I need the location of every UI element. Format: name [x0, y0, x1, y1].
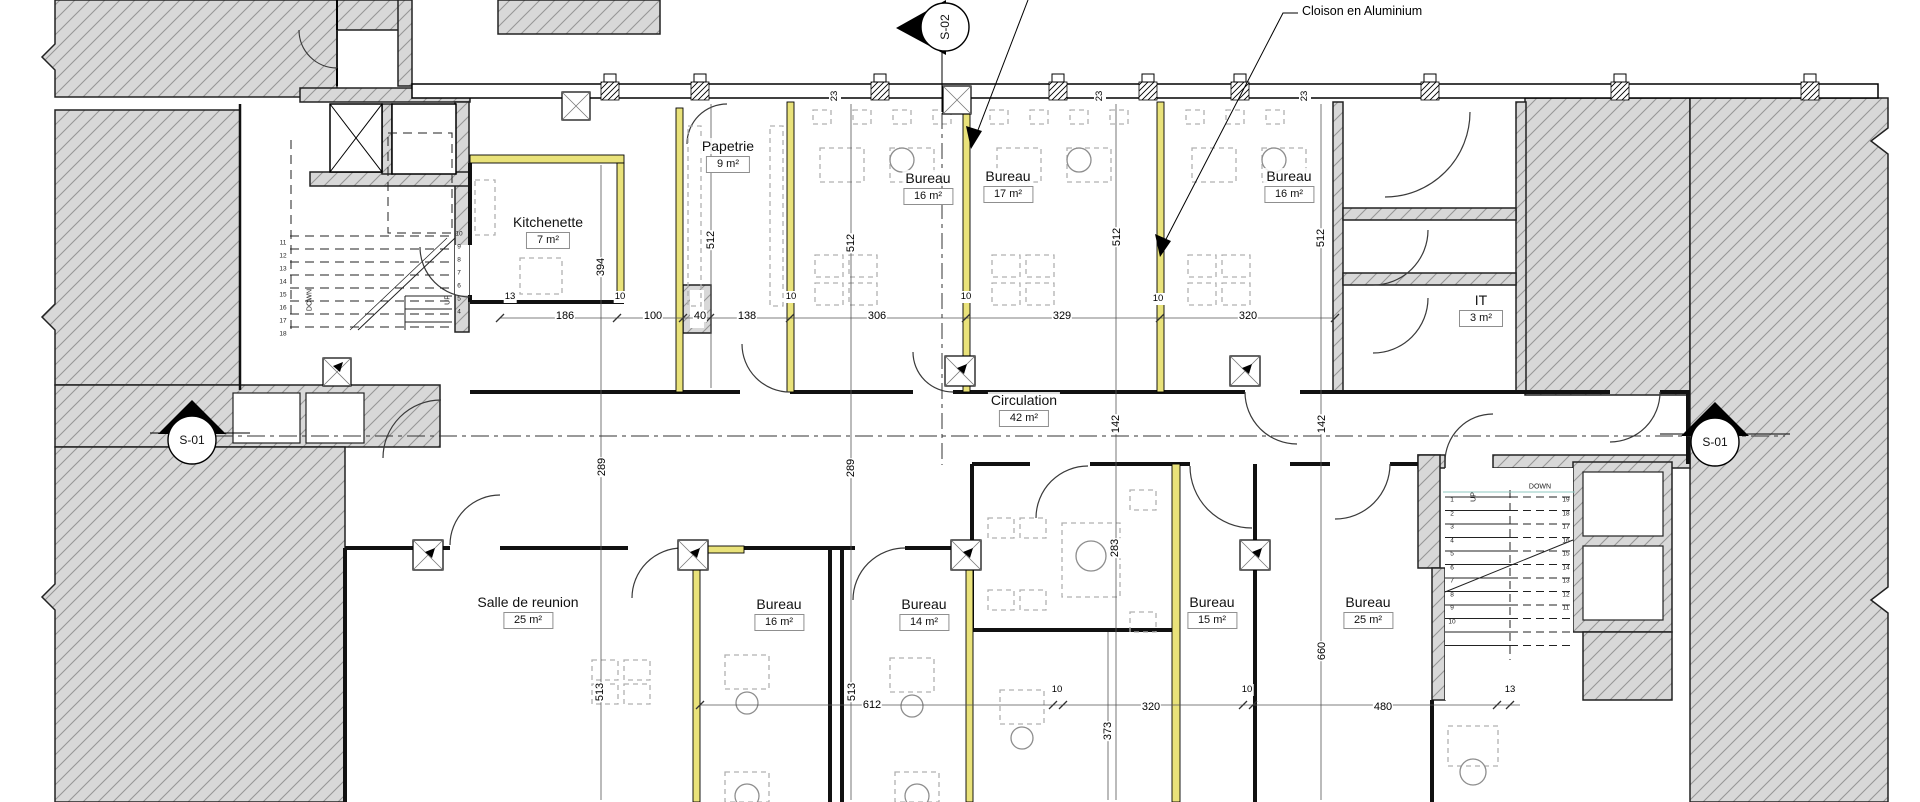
dim-10-d: 10	[1152, 293, 1165, 305]
stair-tread-number: 15	[1562, 551, 1569, 558]
stair-tread-number: 7	[1450, 578, 1454, 585]
stair-tread-number: 9	[1450, 605, 1454, 612]
stair-tread-number: 15	[279, 292, 286, 299]
dim-283: 283	[1109, 538, 1121, 558]
dim-23-a: 23	[829, 90, 841, 103]
stair-tread-number: 10	[1448, 618, 1455, 625]
stair-tread-number: 16	[279, 305, 286, 312]
room-label-bureau-bottom-1: Bureau16 m²	[753, 596, 804, 631]
stair-tread-number: 5	[1450, 551, 1454, 558]
room-label-salle-de-reunion: Salle de reunion25 m²	[474, 594, 581, 629]
dim-10-e: 10	[1051, 684, 1064, 696]
stair-tread-number: 18	[279, 331, 286, 338]
stair-tread-number: 1	[1450, 497, 1454, 504]
dim-289-b: 289	[845, 458, 857, 478]
annotation-leaders	[978, 0, 1298, 245]
dim-320-top: 320	[1238, 310, 1258, 322]
stair-tread-number: 8	[1450, 591, 1454, 598]
stair-tread-number: 5	[457, 296, 461, 303]
stair-tread-number: 18	[1562, 510, 1569, 517]
stair-tread-number: 14	[1562, 564, 1569, 571]
stair-right-up-label: UP	[1471, 492, 1478, 502]
dim-23-b: 23	[1094, 90, 1106, 103]
stair-tread-number: 17	[279, 318, 286, 325]
dim-289-a: 289	[596, 457, 608, 477]
stair-left-down-label: DOWN	[307, 289, 314, 311]
stair-tread-number: 6	[457, 283, 461, 290]
stair-tread-number: 8	[457, 257, 461, 264]
dim-138: 138	[737, 310, 757, 322]
dim-23-c: 23	[1299, 90, 1311, 103]
dim-40: 40	[693, 310, 707, 322]
room-label-bureau-top-2: Bureau17 m²	[982, 168, 1033, 203]
floor-plan-canvas: S-01 S-01 S-02	[0, 0, 1920, 802]
room-label-circulation: Circulation42 m²	[988, 392, 1060, 427]
dim-512-c: 512	[1111, 227, 1123, 247]
dim-142-b: 142	[1316, 414, 1328, 434]
elevator-shaft	[330, 104, 456, 174]
stair-tread-number: 12	[1562, 591, 1569, 598]
aluminium-partitions	[470, 102, 1180, 802]
stair-tread-number: 10	[455, 231, 462, 238]
stair-tread-number: 17	[1562, 524, 1569, 531]
room-label-bureau-top-3: Bureau16 m²	[1263, 168, 1314, 203]
room-label-bureau-bottom-2: Bureau14 m²	[898, 596, 949, 631]
dim-394: 394	[595, 257, 607, 277]
dim-10-f: 10	[1241, 684, 1254, 696]
stair-tread-number: 13	[279, 266, 286, 273]
dim-306: 306	[867, 310, 887, 322]
dim-373: 373	[1102, 721, 1114, 741]
dim-100: 100	[643, 310, 663, 322]
dim-186: 186	[555, 310, 575, 322]
dim-512-a: 512	[705, 230, 717, 250]
stair-tread-number: 12	[279, 253, 286, 260]
stair-tread-number: 11	[280, 240, 287, 247]
svg-text:S-02: S-02	[938, 14, 952, 40]
stair-tread-number: 3	[1450, 524, 1454, 531]
dim-513-a: 513	[594, 682, 606, 702]
dim-660: 660	[1316, 641, 1328, 661]
dim-320-bottom: 320	[1141, 701, 1161, 713]
stair-right-down-label: DOWN	[1529, 484, 1551, 491]
dim-13-top: 13	[504, 291, 517, 303]
stair-tread-number: 13	[1562, 578, 1569, 585]
dim-612: 612	[862, 699, 882, 711]
stair-tread-number: 7	[457, 270, 461, 277]
dim-10-a: 10	[614, 291, 627, 303]
stair-left-up-label: UP	[445, 295, 452, 305]
dim-10-c: 10	[960, 291, 973, 303]
stair-tread-number: 4	[457, 309, 461, 316]
room-label-bureau-top-1: Bureau16 m²	[902, 170, 953, 205]
dim-513-b: 513	[846, 682, 858, 702]
annotation-cloison: Cloison en Aluminium	[1302, 4, 1422, 18]
stair-tread-number: 11	[1563, 605, 1570, 612]
room-label-papetrie: Papetrie9 m²	[699, 138, 757, 173]
dim-480: 480	[1373, 701, 1393, 713]
dim-10-b: 10	[785, 291, 798, 303]
dim-329: 329	[1052, 310, 1072, 322]
stair-tread-number: 14	[279, 279, 286, 286]
dim-512-d: 512	[1315, 228, 1327, 248]
stair-tread-number: 2	[1450, 510, 1454, 517]
floor-plan: S-01 S-01 S-02 Papetrie9 m² Kitchenette7…	[0, 0, 1920, 802]
dim-142-a: 142	[1110, 414, 1122, 434]
dim-13-bottom: 13	[1504, 684, 1517, 696]
stair-tread-number: 16	[1562, 537, 1569, 544]
dim-512-b: 512	[845, 233, 857, 253]
stair-tread-number: 9	[457, 244, 461, 251]
stair-tread-number: 19	[1562, 497, 1569, 504]
stair-tread-number: 6	[1450, 564, 1454, 571]
svg-text:S-01: S-01	[1702, 435, 1728, 449]
room-label-kitchenette: Kitchenette7 m²	[510, 214, 586, 249]
room-label-bureau-bottom-4: Bureau25 m²	[1342, 594, 1393, 629]
room-label-it: IT3 m²	[1459, 292, 1503, 327]
room-label-bureau-bottom-3: Bureau15 m²	[1186, 594, 1237, 629]
stair-tread-number: 4	[1450, 537, 1454, 544]
svg-text:S-01: S-01	[179, 433, 205, 447]
